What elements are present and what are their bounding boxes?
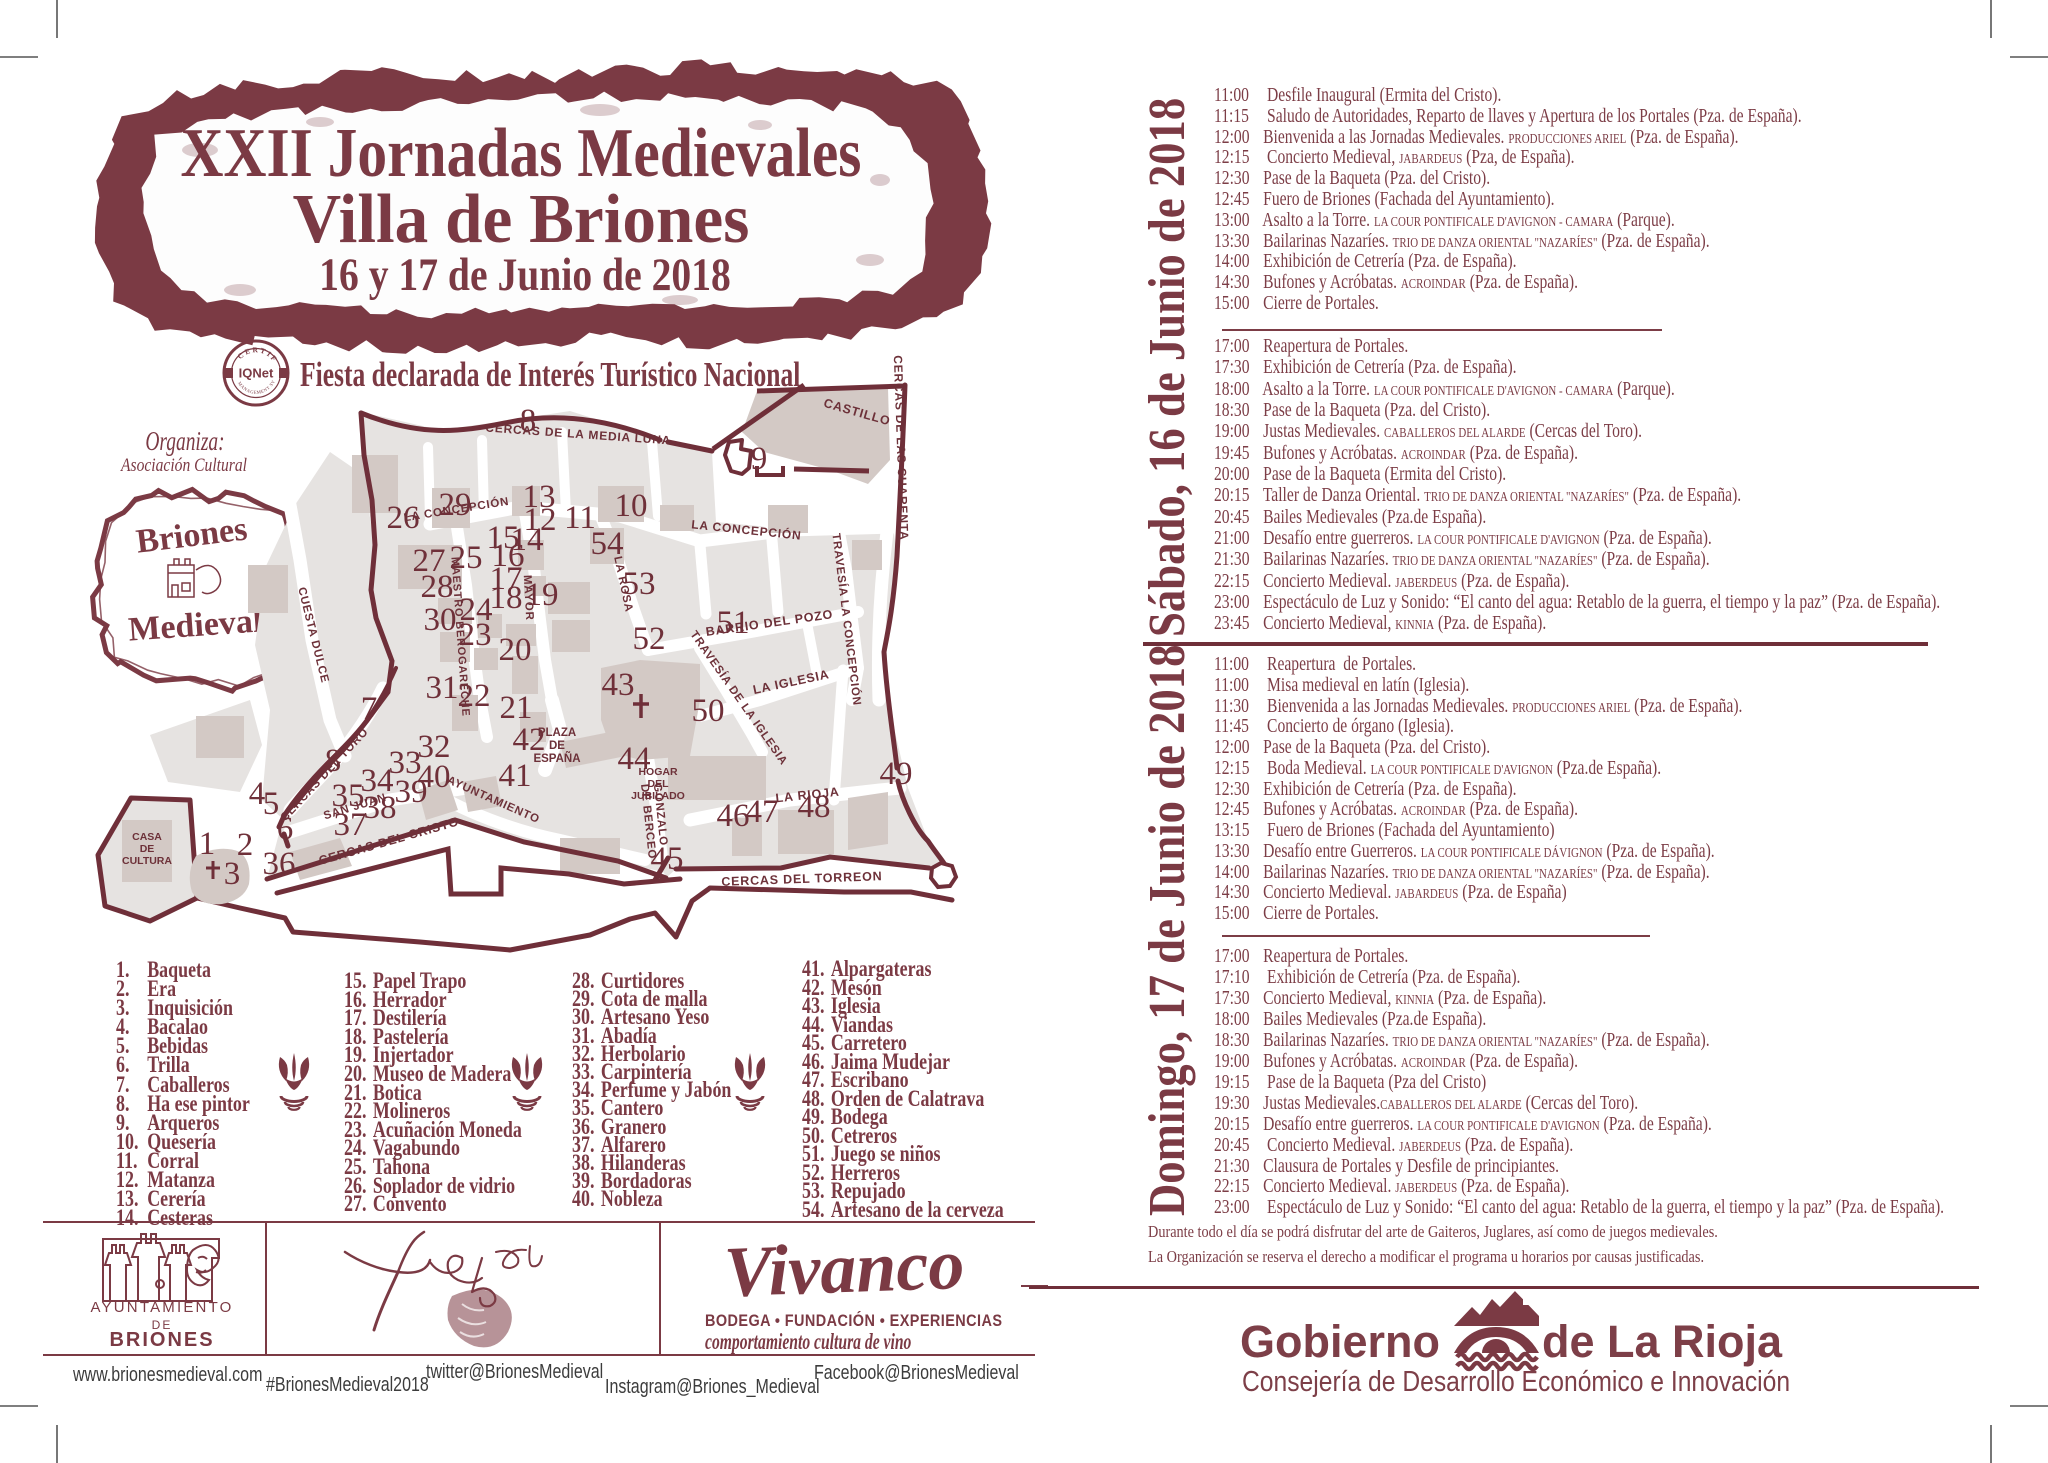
svg-text:52: 52 [633, 621, 666, 657]
svg-text:CASA: CASA [132, 831, 162, 843]
svg-text:Briones: Briones [134, 510, 249, 560]
svg-text:ESPAÑA: ESPAÑA [533, 752, 580, 765]
svg-text:1: 1 [199, 826, 216, 862]
svg-text:43: 43 [602, 667, 635, 703]
svg-text:3: 3 [224, 856, 241, 892]
svg-text:20: 20 [499, 632, 532, 668]
svg-text:41: 41 [499, 758, 532, 794]
svg-text:CERCAS DEL TORREON: CERCAS DEL TORREON [721, 869, 883, 889]
svg-text:IQNet: IQNet [239, 366, 274, 381]
svg-text:DE: DE [549, 740, 565, 752]
svg-text:CERCAS DE LAS CUARENTA: CERCAS DE LAS CUARENTA [891, 355, 911, 541]
svg-text:10: 10 [615, 488, 648, 524]
svg-text:JUBILADO: JUBILADO [631, 790, 685, 802]
svg-text:DEL: DEL [648, 778, 670, 790]
svg-text:31: 31 [426, 670, 459, 706]
svg-text:18: 18 [490, 580, 523, 616]
svg-text:HOGAR: HOGAR [638, 766, 678, 778]
svg-text:28: 28 [421, 569, 454, 605]
svg-text:50: 50 [692, 693, 725, 729]
svg-text:49: 49 [880, 756, 913, 792]
svg-text:Vivanco: Vivanco [723, 1224, 966, 1312]
svg-text:7: 7 [361, 691, 378, 727]
svg-text:13: 13 [523, 479, 556, 515]
svg-text:36: 36 [263, 846, 296, 882]
svg-text:30: 30 [424, 602, 457, 638]
svg-text:Medieval: Medieval [127, 602, 263, 648]
svg-text:PLAZA: PLAZA [538, 727, 576, 739]
svg-text:21: 21 [500, 690, 533, 726]
svg-text:47: 47 [746, 794, 779, 830]
svg-text:40: 40 [418, 759, 451, 795]
svg-text:DE: DE [140, 843, 155, 855]
svg-text:9: 9 [751, 441, 768, 477]
svg-text:CULTURA: CULTURA [122, 855, 172, 867]
svg-text:MAYOR: MAYOR [521, 575, 535, 621]
